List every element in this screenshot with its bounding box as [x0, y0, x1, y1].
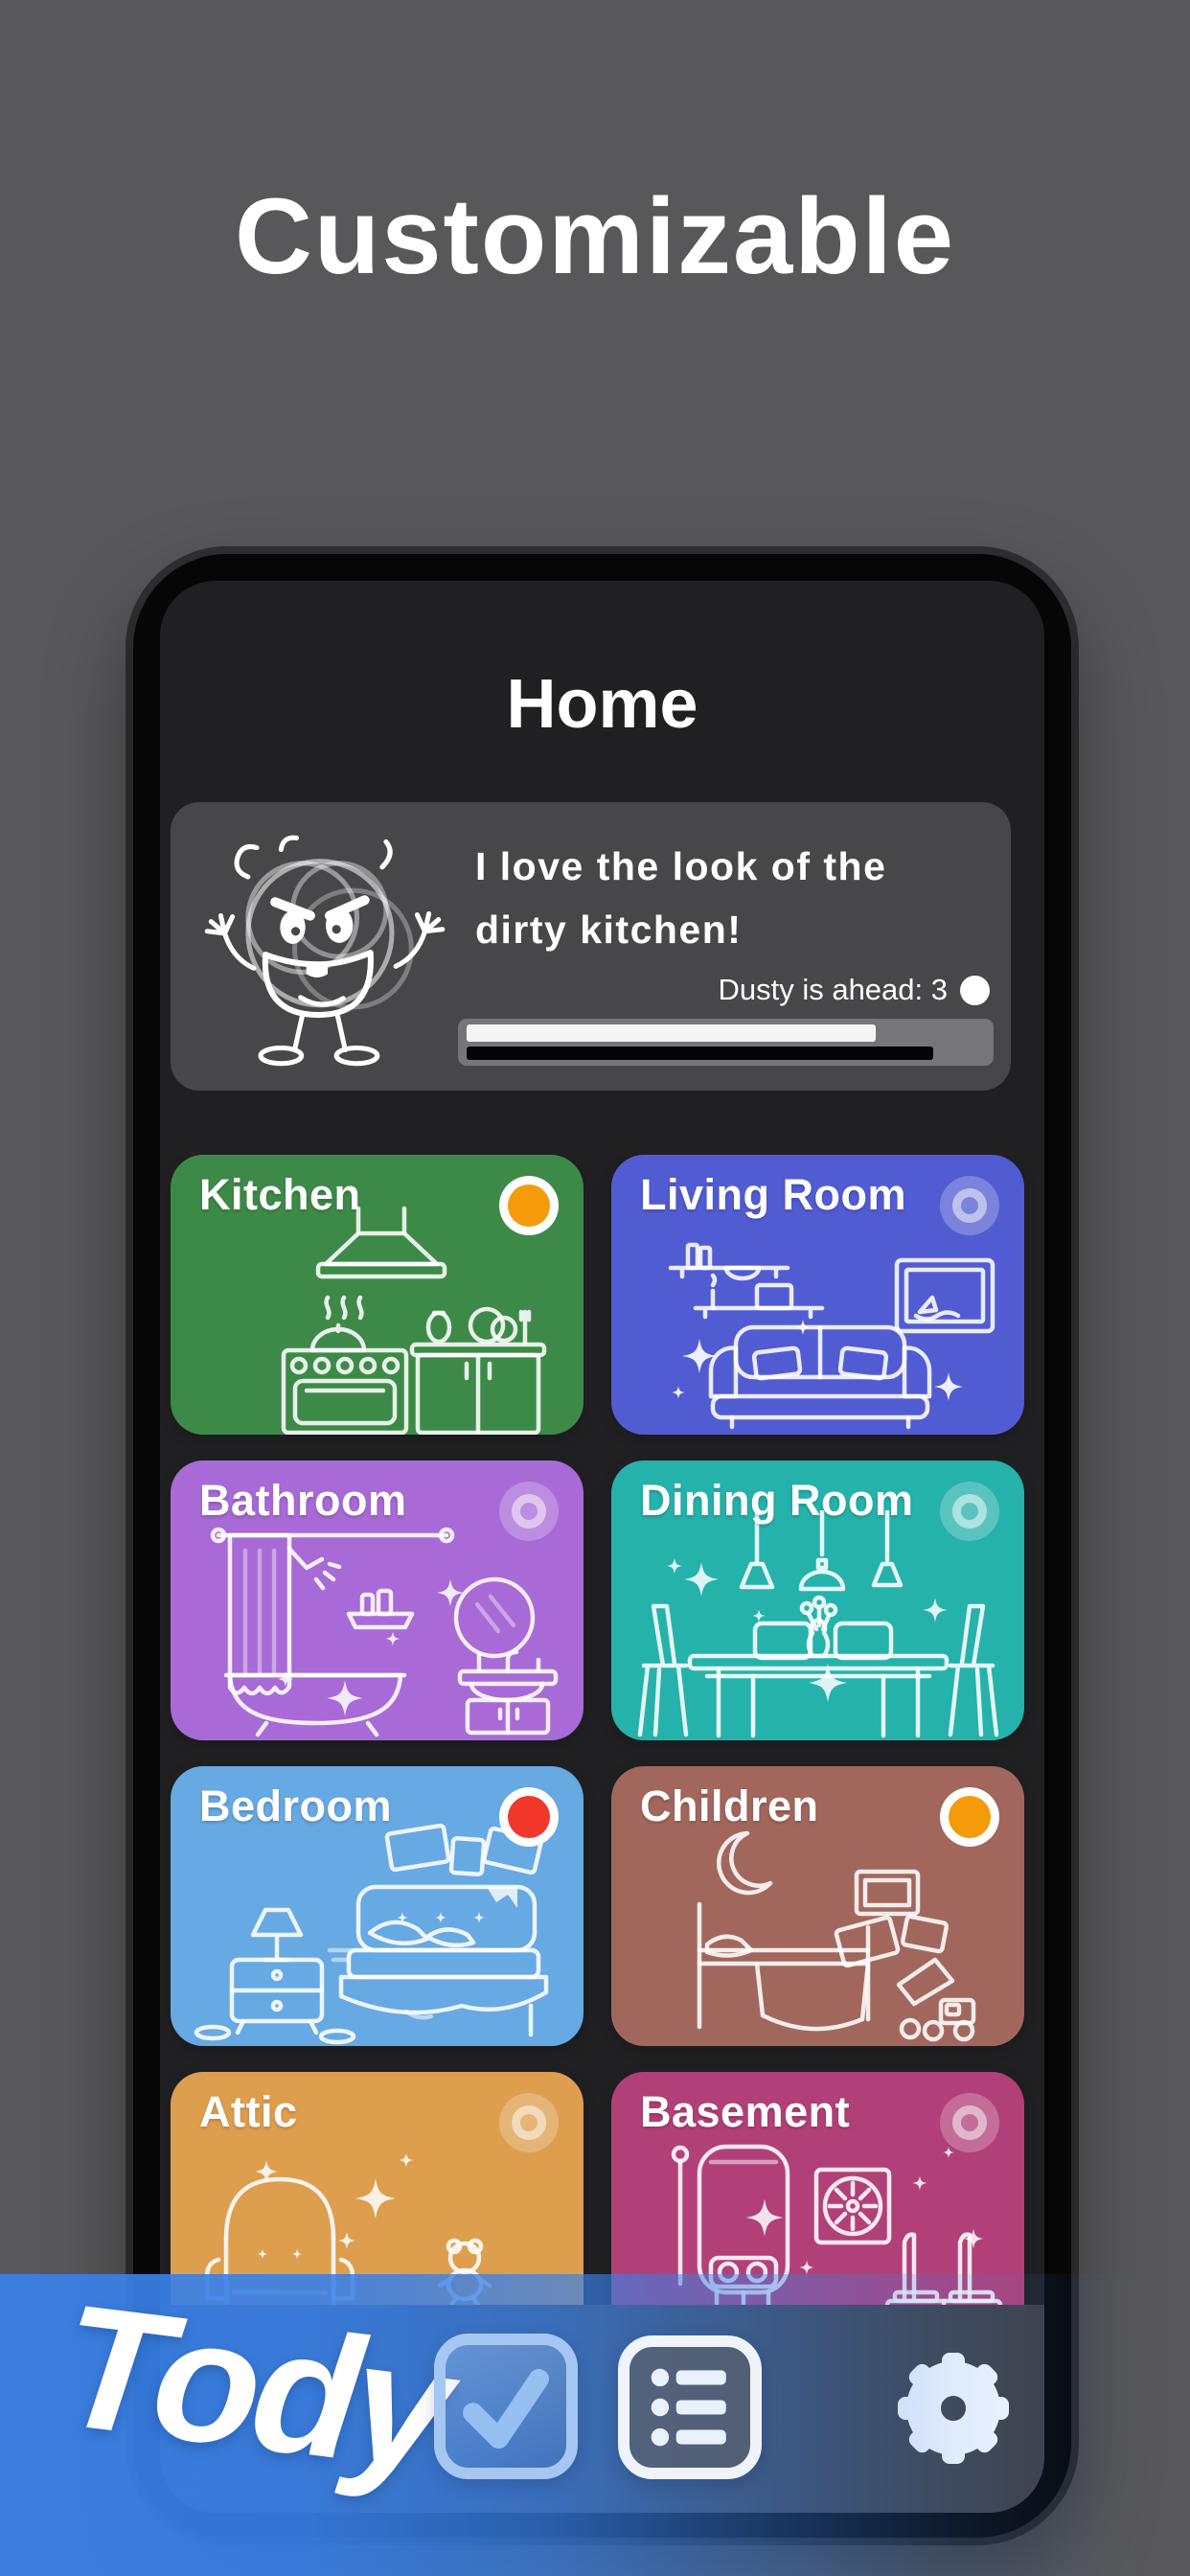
room-card-dining-room[interactable]: Dining Room: [611, 1460, 1024, 1740]
room-status-indicator: [940, 2093, 999, 2152]
dusty-status-card: I love the look of the dirty kitchen! Du…: [171, 802, 1011, 1091]
room-status-indicator: [499, 1482, 559, 1541]
bedroom-illustration: [171, 1816, 584, 2046]
dusty-monster-illustration: [192, 823, 458, 1070]
app-screen: Home: [160, 581, 1044, 2513]
room-title: Kitchen: [199, 1170, 361, 1220]
room-title: Dining Room: [640, 1476, 913, 1526]
user-progress-bar: [467, 1024, 876, 1042]
marketing-screenshot: Customizable Home: [0, 0, 1190, 2576]
task-list-app-icon: [618, 2335, 762, 2479]
race-progress: [458, 1019, 994, 1066]
room-card-attic[interactable]: Attic: [171, 2072, 584, 2305]
room-status-indicator: [499, 2093, 559, 2152]
dusty-status-text: Dusty is ahead: 3: [718, 973, 948, 1007]
bathroom-illustration: [171, 1510, 584, 1740]
room-status-indicator: [940, 1176, 999, 1235]
room-grid: Kitchen: [160, 1155, 1044, 2305]
dusty-status-row: Dusty is ahead: 3: [718, 973, 990, 1007]
room-title: Living Room: [640, 1170, 906, 1220]
dusty-quote: I love the look of the dirty kitchen!: [475, 835, 886, 962]
checkmark-icon: [446, 2345, 566, 2468]
room-status-indicator: [499, 1787, 559, 1847]
room-title: Basement: [640, 2087, 850, 2137]
dusty-quote-line2: dirty kitchen!: [475, 898, 886, 961]
task-list-icon: [629, 2347, 750, 2468]
room-card-kitchen[interactable]: Kitchen: [171, 1155, 584, 1435]
kitchen-illustration: [171, 1205, 584, 1435]
dining-room-illustration: [611, 1510, 1024, 1740]
children-room-illustration: [611, 1816, 1024, 2046]
room-title: Attic: [199, 2087, 298, 2137]
phone-mockup: Home: [133, 554, 1071, 2538]
page-title: Home: [160, 665, 1044, 744]
room-status-indicator: [940, 1787, 999, 1847]
hero-title: Customizable: [0, 174, 1190, 298]
room-status-indicator: [940, 1482, 999, 1541]
checkmark-app-icon: [434, 2334, 578, 2479]
room-status-indicator: [499, 1176, 559, 1235]
dusty-progress-bar: [467, 1046, 933, 1060]
living-room-illustration: [611, 1205, 1024, 1435]
room-card-bathroom[interactable]: Bathroom: [171, 1460, 584, 1740]
room-title: Bedroom: [199, 1782, 392, 1831]
room-card-children[interactable]: Children: [611, 1766, 1024, 2046]
room-title: Children: [640, 1782, 819, 1831]
room-title: Bathroom: [199, 1476, 407, 1526]
white-dot-icon: [960, 976, 990, 1005]
dusty-quote-line1: I love the look of the: [475, 835, 886, 898]
room-card-living-room[interactable]: Living Room: [611, 1155, 1024, 1435]
room-card-basement[interactable]: Basement: [611, 2072, 1024, 2305]
room-card-bedroom[interactable]: Bedroom: [171, 1766, 584, 2046]
